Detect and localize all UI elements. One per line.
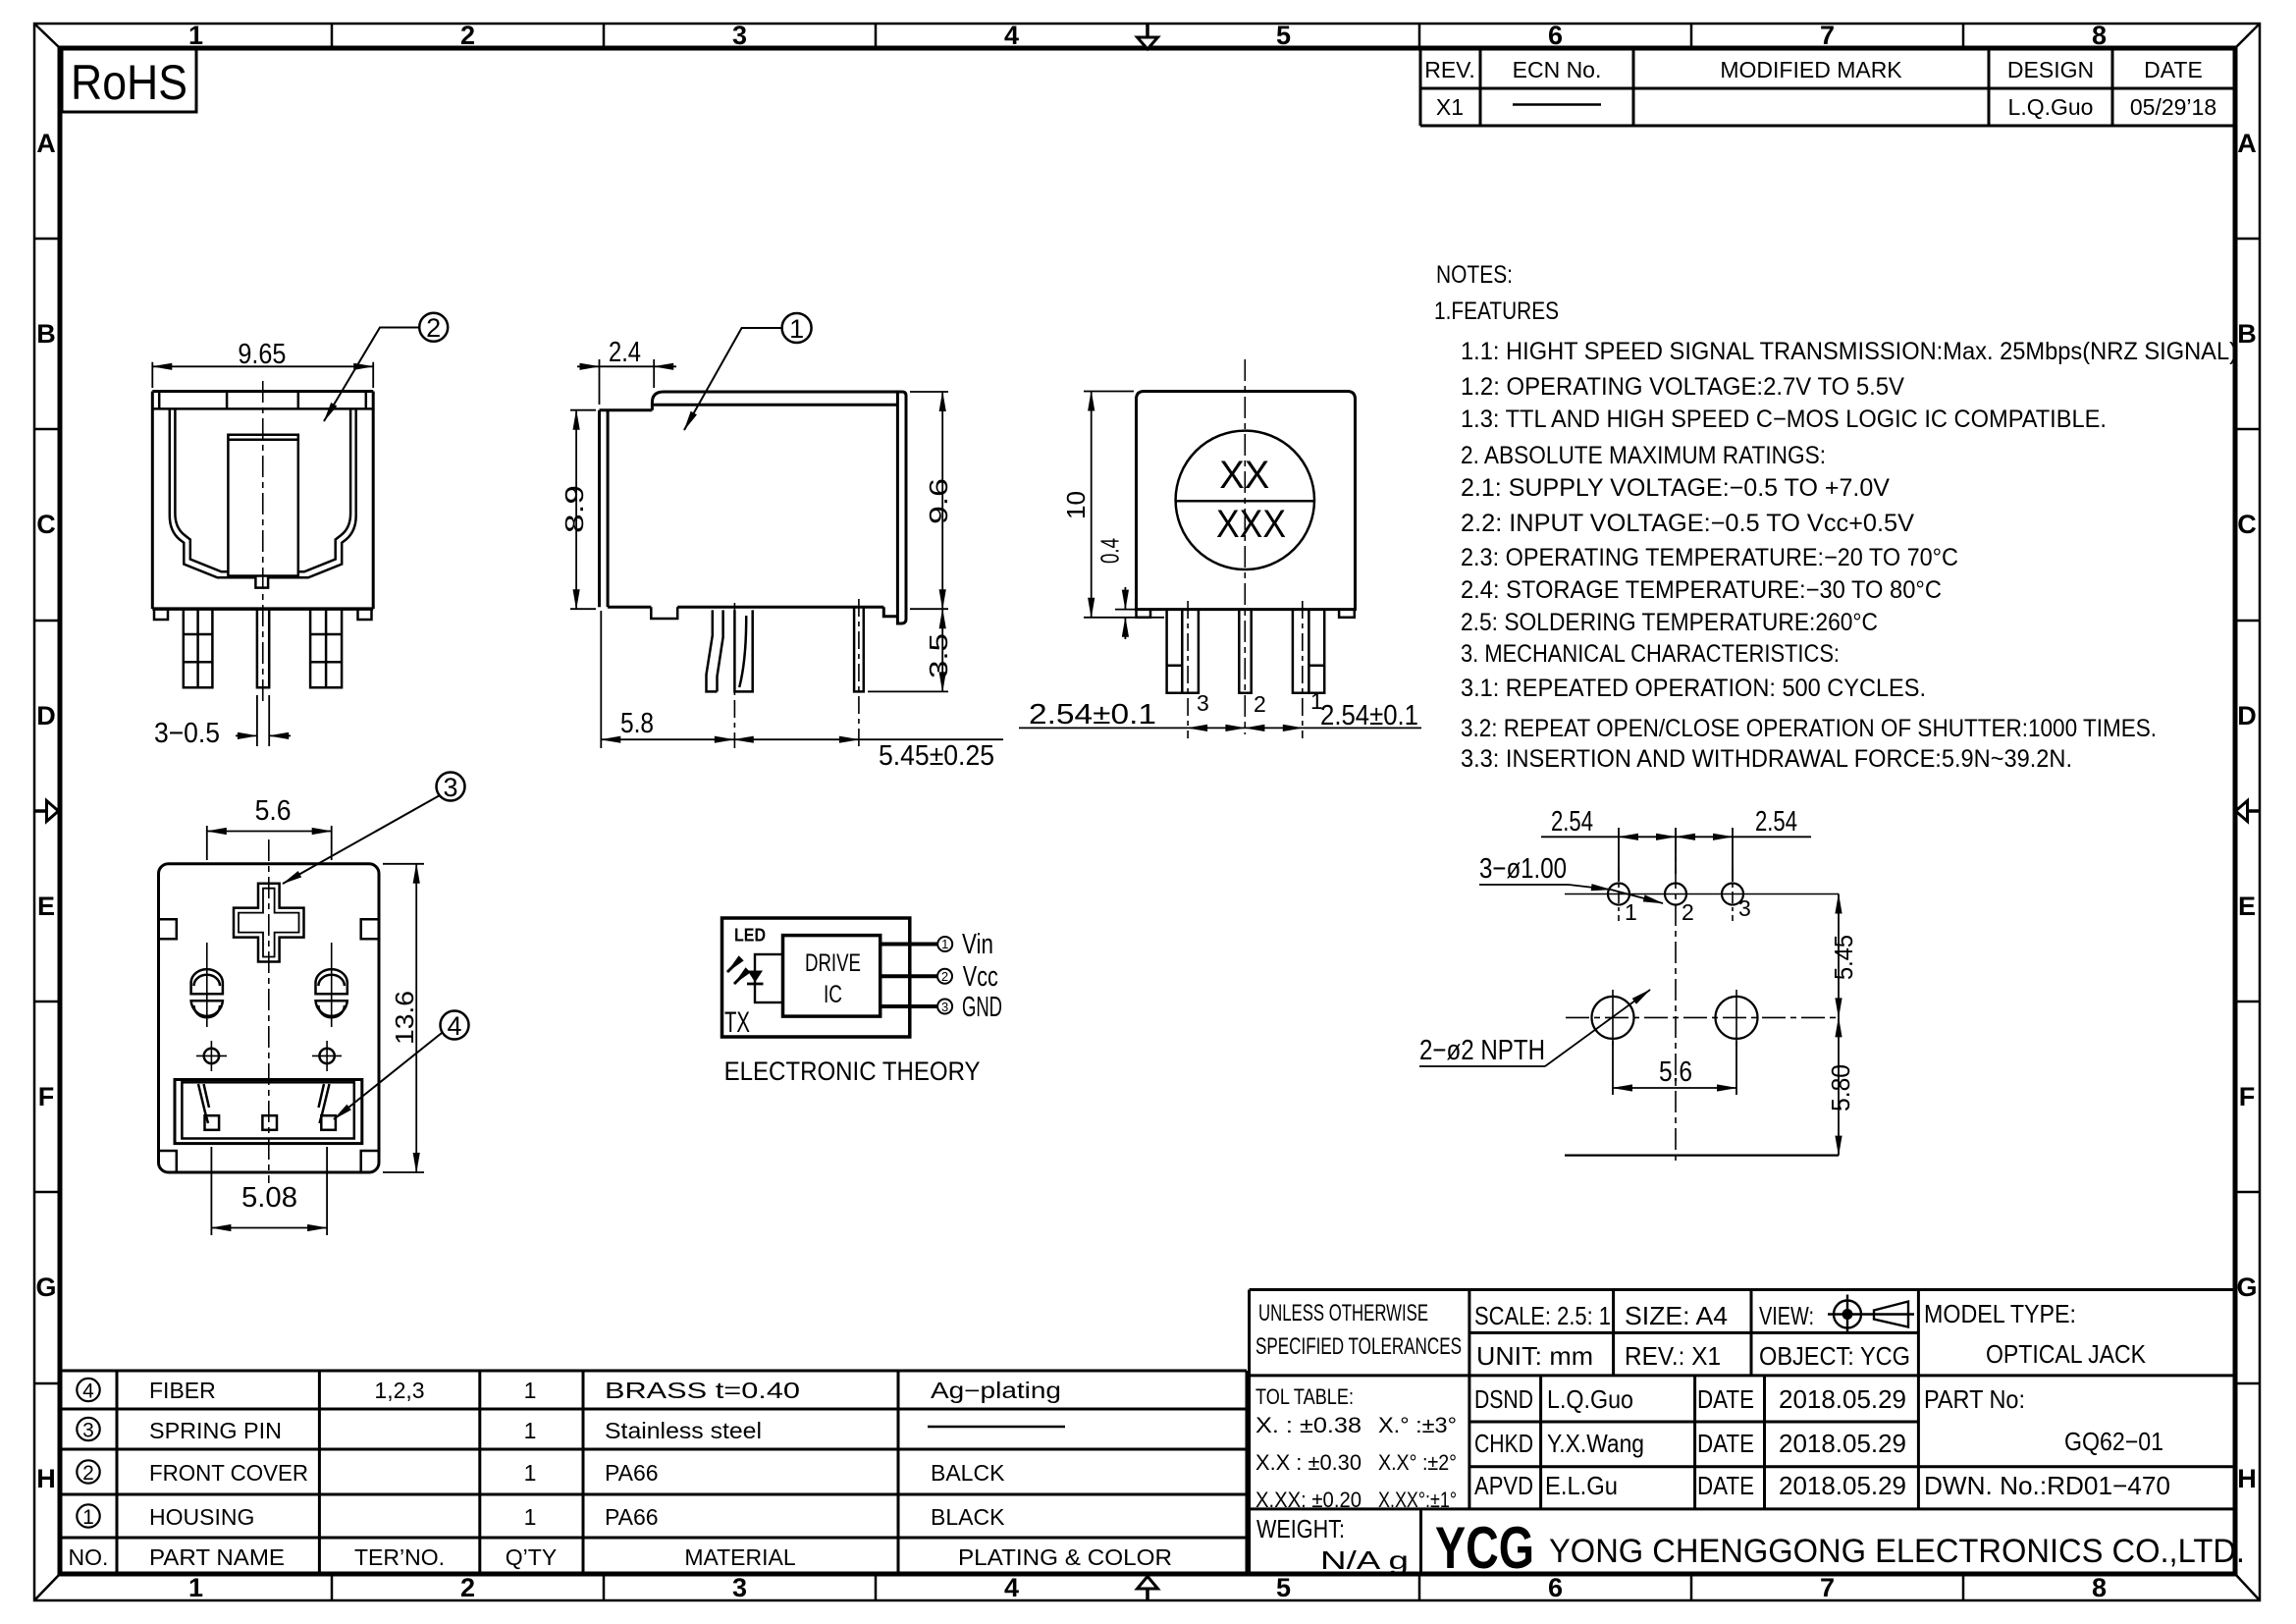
svg-text:2018.05.29: 2018.05.29 bbox=[1779, 1471, 1906, 1500]
svg-text:5.45: 5.45 bbox=[1829, 935, 1858, 980]
svg-text:2.2: INPUT VOLTAGE:−0.5 TO: 2.2: INPUT VOLTAGE:−0.5 TO Vcc+0.5V bbox=[1461, 510, 1914, 537]
svg-text:LED: LED bbox=[734, 926, 766, 946]
svg-text:2: 2 bbox=[460, 1573, 475, 1602]
svg-text:ECN No.: ECN No. bbox=[1513, 57, 1602, 82]
svg-text:MATERIAL: MATERIAL bbox=[684, 1544, 796, 1570]
svg-text:2.3: OPERATING TEMPERATURE:−: 2.3: OPERATING TEMPERATURE:−20 TO 70°C bbox=[1461, 544, 1958, 571]
svg-text:2: 2 bbox=[460, 21, 475, 50]
svg-text:3.3: INSERTION AND WITHDRAW: 3.3: INSERTION AND WITHDRAWAL FORCE:5.9N… bbox=[1461, 745, 2072, 773]
svg-text:1: 1 bbox=[524, 1418, 537, 1443]
svg-text:N/A g: N/A g bbox=[1320, 1545, 1409, 1575]
svg-text:6: 6 bbox=[1548, 21, 1563, 50]
svg-text:3: 3 bbox=[941, 1000, 948, 1014]
svg-text:TER’NO.: TER’NO. bbox=[354, 1544, 445, 1570]
svg-text:4: 4 bbox=[82, 1380, 94, 1403]
svg-text:1: 1 bbox=[524, 1504, 537, 1530]
svg-text:DATE: DATE bbox=[2144, 57, 2203, 82]
svg-text:5: 5 bbox=[1276, 21, 1291, 50]
svg-text:3: 3 bbox=[732, 1573, 747, 1602]
svg-text:4: 4 bbox=[447, 1011, 461, 1041]
svg-text:B: B bbox=[2237, 319, 2257, 349]
svg-text:X.X : ±0.30: X.X : ±0.30 bbox=[1255, 1450, 1362, 1475]
svg-text:E.L.Gu: E.L.Gu bbox=[1545, 1471, 1618, 1500]
svg-text:X. : ±0.38: X. : ±0.38 bbox=[1255, 1413, 1362, 1437]
svg-text:2.54: 2.54 bbox=[1551, 806, 1593, 838]
svg-text:PA66: PA66 bbox=[605, 1504, 659, 1530]
svg-text:10: 10 bbox=[1061, 491, 1091, 519]
svg-text:BRASS t=0.40: BRASS t=0.40 bbox=[605, 1378, 800, 1403]
svg-text:3.1: REPEATED OPERATION: 50: 3.1: REPEATED OPERATION: 500 CYCLES. bbox=[1461, 675, 1926, 702]
svg-text:E: E bbox=[2238, 892, 2256, 921]
svg-text:X1: X1 bbox=[1436, 94, 1464, 120]
svg-text:D: D bbox=[2237, 701, 2257, 731]
svg-text:5.6: 5.6 bbox=[1659, 1056, 1692, 1088]
svg-text:YCG: YCG bbox=[1435, 1515, 1534, 1581]
svg-text:PART NAME: PART NAME bbox=[149, 1544, 285, 1570]
svg-text:DSND: DSND bbox=[1474, 1384, 1533, 1414]
svg-text:UNIT: mm: UNIT: mm bbox=[1476, 1341, 1593, 1371]
svg-text:DATE: DATE bbox=[1697, 1384, 1754, 1414]
svg-text:1: 1 bbox=[1625, 899, 1637, 925]
svg-text:4: 4 bbox=[1004, 1573, 1019, 1602]
svg-text:SCALE: 2.5: 1: SCALE: 2.5: 1 bbox=[1474, 1301, 1611, 1330]
svg-text:2018.05.29: 2018.05.29 bbox=[1779, 1429, 1906, 1458]
svg-text:DESIGN: DESIGN bbox=[2007, 57, 2094, 82]
svg-text:5.08: 5.08 bbox=[241, 1182, 297, 1214]
svg-text:1.2: OPERATING VOLTAGE:2.7V: 1.2: OPERATING VOLTAGE:2.7V TO 5.5V bbox=[1461, 373, 1904, 401]
svg-text:X.° :±3°: X.° :±3° bbox=[1378, 1413, 1457, 1437]
svg-text:6: 6 bbox=[1548, 1573, 1563, 1602]
svg-text:8.9: 8.9 bbox=[560, 485, 589, 533]
svg-text:OPTICAL JACK: OPTICAL JACK bbox=[1986, 1339, 2147, 1369]
svg-text:3: 3 bbox=[1738, 895, 1751, 921]
svg-text:7: 7 bbox=[1820, 21, 1835, 50]
svg-text:A: A bbox=[36, 129, 56, 158]
svg-text:A: A bbox=[2237, 129, 2257, 158]
svg-text:9.6: 9.6 bbox=[924, 478, 953, 524]
svg-text:BLACK: BLACK bbox=[931, 1504, 1005, 1530]
svg-text:5.45±0.25: 5.45±0.25 bbox=[879, 740, 994, 772]
svg-text:Q’TY: Q’TY bbox=[506, 1544, 557, 1570]
svg-text:G: G bbox=[35, 1272, 56, 1302]
svg-text:OBJECT: YCG: OBJECT: YCG bbox=[1759, 1341, 1910, 1371]
svg-text:MODIFIED MARK: MODIFIED MARK bbox=[1720, 57, 1902, 82]
svg-text:1: 1 bbox=[941, 937, 948, 951]
svg-text:PA66: PA66 bbox=[605, 1460, 659, 1486]
svg-text:B: B bbox=[36, 319, 56, 349]
svg-text:SPECIFIED TOLERANCES: SPECIFIED TOLERANCES bbox=[1255, 1333, 1462, 1360]
svg-text:1: 1 bbox=[524, 1460, 537, 1486]
svg-text:9.65: 9.65 bbox=[238, 339, 286, 370]
svg-text:L.Q.Guo: L.Q.Guo bbox=[1547, 1384, 1633, 1414]
svg-text:2.5: SOLDERING TEMPERATURE:2: 2.5: SOLDERING TEMPERATURE:260°C bbox=[1461, 609, 1878, 636]
svg-text:2. ABSOLUTE MAXIMUM RATINGS: 2. ABSOLUTE MAXIMUM RATINGS: bbox=[1461, 442, 1826, 469]
svg-text:Ag−plating: Ag−plating bbox=[931, 1378, 1061, 1403]
svg-text:C: C bbox=[36, 510, 56, 539]
svg-text:SPRING PIN: SPRING PIN bbox=[149, 1418, 282, 1443]
svg-text:2−ø2 NPTH: 2−ø2 NPTH bbox=[1419, 1035, 1545, 1066]
svg-text:2: 2 bbox=[1254, 691, 1266, 717]
svg-text:TOL TABLE:: TOL TABLE: bbox=[1255, 1384, 1354, 1409]
svg-text:CHKD: CHKD bbox=[1474, 1429, 1533, 1458]
svg-text:1: 1 bbox=[82, 1506, 94, 1529]
svg-text:DATE: DATE bbox=[1697, 1471, 1754, 1500]
svg-text:2.4: STORAGE TEMPERATURE:−30: 2.4: STORAGE TEMPERATURE:−30 TO 80°C bbox=[1461, 576, 1942, 604]
svg-text:G: G bbox=[2236, 1272, 2257, 1302]
svg-text:1.FEATURES: 1.FEATURES bbox=[1434, 298, 1559, 325]
svg-text:Vin: Vin bbox=[962, 929, 993, 960]
svg-text:MODEL TYPE:: MODEL TYPE: bbox=[1924, 1299, 2076, 1328]
svg-text:2018.05.29: 2018.05.29 bbox=[1779, 1384, 1906, 1414]
svg-text:DRIVE: DRIVE bbox=[805, 949, 861, 977]
svg-text:Y.X.Wang: Y.X.Wang bbox=[1547, 1429, 1644, 1458]
svg-text:YONG CHENGGONG ELECTRONICS: YONG CHENGGONG ELECTRONICS CO.,LTD. bbox=[1549, 1533, 2245, 1570]
svg-text:0.4: 0.4 bbox=[1095, 538, 1124, 564]
svg-text:VIEW:: VIEW: bbox=[1759, 1301, 1814, 1330]
svg-text:X.XX°:±1°: X.XX°:±1° bbox=[1378, 1488, 1457, 1512]
svg-text:NOTES:: NOTES: bbox=[1436, 261, 1513, 289]
svg-text:RoHS: RoHS bbox=[71, 55, 187, 110]
svg-text:8: 8 bbox=[2092, 1573, 2107, 1602]
svg-text:2.4: 2.4 bbox=[609, 337, 641, 368]
svg-text:X.X° :±2°: X.X° :±2° bbox=[1378, 1450, 1457, 1475]
svg-text:8: 8 bbox=[2092, 21, 2107, 50]
svg-text:D: D bbox=[36, 701, 56, 731]
svg-text:2.54±0.1: 2.54±0.1 bbox=[1029, 699, 1156, 731]
svg-text:APVD: APVD bbox=[1474, 1471, 1533, 1500]
svg-text:Vcc: Vcc bbox=[963, 961, 998, 993]
svg-text:DWN. No.:RD01−470: DWN. No.:RD01−470 bbox=[1924, 1471, 2170, 1500]
svg-text:C: C bbox=[2237, 510, 2257, 539]
svg-text:5: 5 bbox=[1276, 1573, 1291, 1602]
svg-text:3: 3 bbox=[1197, 690, 1209, 716]
svg-text:H: H bbox=[2237, 1464, 2257, 1493]
svg-text:GQ62−01: GQ62−01 bbox=[2064, 1427, 2163, 1456]
svg-text:ELECTRONIC THEORY: ELECTRONIC THEORY bbox=[724, 1056, 981, 1086]
svg-text:REV.: REV. bbox=[1424, 57, 1475, 82]
svg-text:1: 1 bbox=[789, 314, 804, 344]
svg-text:1,2,3: 1,2,3 bbox=[374, 1378, 424, 1403]
svg-text:UNLESS OTHERWISE: UNLESS OTHERWISE bbox=[1258, 1300, 1428, 1326]
svg-text:2: 2 bbox=[82, 1462, 94, 1485]
svg-text:5.80: 5.80 bbox=[1826, 1064, 1855, 1111]
svg-text:XXX: XXX bbox=[1216, 503, 1286, 546]
svg-text:X.XX: ±0.20: X.XX: ±0.20 bbox=[1255, 1488, 1362, 1512]
svg-text:DATE: DATE bbox=[1697, 1429, 1754, 1458]
svg-text:05/29’18: 05/29’18 bbox=[2130, 94, 2216, 120]
svg-text:2: 2 bbox=[1682, 899, 1694, 925]
svg-text:WEIGHT:: WEIGHT: bbox=[1256, 1514, 1345, 1543]
svg-text:3: 3 bbox=[732, 21, 747, 50]
svg-text:2.1: SUPPLY VOLTAGE:−0.5 TO: 2.1: SUPPLY VOLTAGE:−0.5 TO +7.0V bbox=[1461, 474, 1890, 502]
svg-text:Stainless steel: Stainless steel bbox=[605, 1418, 762, 1443]
svg-text:HOUSING: HOUSING bbox=[149, 1504, 254, 1530]
svg-text:5.6: 5.6 bbox=[255, 795, 292, 827]
svg-text:2: 2 bbox=[426, 313, 441, 343]
svg-text:E: E bbox=[37, 892, 55, 921]
svg-text:2: 2 bbox=[941, 969, 948, 984]
svg-text:FRONT COVER: FRONT COVER bbox=[149, 1460, 308, 1486]
svg-text:F: F bbox=[38, 1082, 55, 1111]
svg-text:1: 1 bbox=[188, 1573, 203, 1602]
svg-text:3.5: 3.5 bbox=[924, 633, 953, 678]
svg-text:3: 3 bbox=[82, 1420, 94, 1442]
svg-text:3−ø1.00: 3−ø1.00 bbox=[1479, 853, 1567, 885]
svg-text:L.Q.Guo: L.Q.Guo bbox=[2008, 94, 2094, 120]
svg-text:3−0.5: 3−0.5 bbox=[154, 718, 220, 749]
svg-text:7: 7 bbox=[1820, 1573, 1835, 1602]
svg-text:NO.: NO. bbox=[69, 1544, 109, 1570]
svg-text:GND: GND bbox=[962, 992, 1002, 1023]
svg-text:FIBER: FIBER bbox=[149, 1378, 216, 1403]
svg-text:1: 1 bbox=[524, 1378, 537, 1403]
svg-text:1.1: HIGHT SPEED SIGNAL TR: 1.1: HIGHT SPEED SIGNAL TRANSMISSION:Max… bbox=[1461, 338, 2237, 365]
svg-text:3: 3 bbox=[443, 773, 457, 802]
svg-text:TX: TX bbox=[724, 1006, 750, 1039]
svg-text:1.3: TTL AND HIGH SPEED C: 1.3: TTL AND HIGH SPEED C−MOS LOGIC IC C… bbox=[1461, 406, 2107, 433]
svg-text:4: 4 bbox=[1004, 21, 1019, 50]
svg-text:5.8: 5.8 bbox=[620, 708, 654, 739]
svg-text:PART No:: PART No: bbox=[1924, 1384, 2025, 1414]
svg-text:BALCK: BALCK bbox=[931, 1460, 1005, 1486]
svg-text:3. MECHANICAL CHARACTERISTIC: 3. MECHANICAL CHARACTERISTICS: bbox=[1461, 640, 1840, 668]
svg-text:PLATING & COLOR: PLATING & COLOR bbox=[958, 1544, 1172, 1570]
svg-text:SIZE: A4: SIZE: A4 bbox=[1625, 1301, 1728, 1330]
svg-text:1: 1 bbox=[188, 21, 203, 50]
svg-text:13.6: 13.6 bbox=[390, 991, 419, 1045]
svg-text:3.2: REPEAT OPEN/CLOSE OPER: 3.2: REPEAT OPEN/CLOSE OPERATION OF SHUT… bbox=[1461, 715, 2157, 742]
svg-text:REV.: X1: REV.: X1 bbox=[1625, 1341, 1721, 1371]
svg-text:F: F bbox=[2239, 1082, 2256, 1111]
svg-text:2.54: 2.54 bbox=[1755, 806, 1797, 838]
svg-text:2.54±0.1: 2.54±0.1 bbox=[1320, 700, 1418, 731]
svg-text:H: H bbox=[36, 1464, 56, 1493]
svg-text:IC: IC bbox=[824, 981, 842, 1008]
